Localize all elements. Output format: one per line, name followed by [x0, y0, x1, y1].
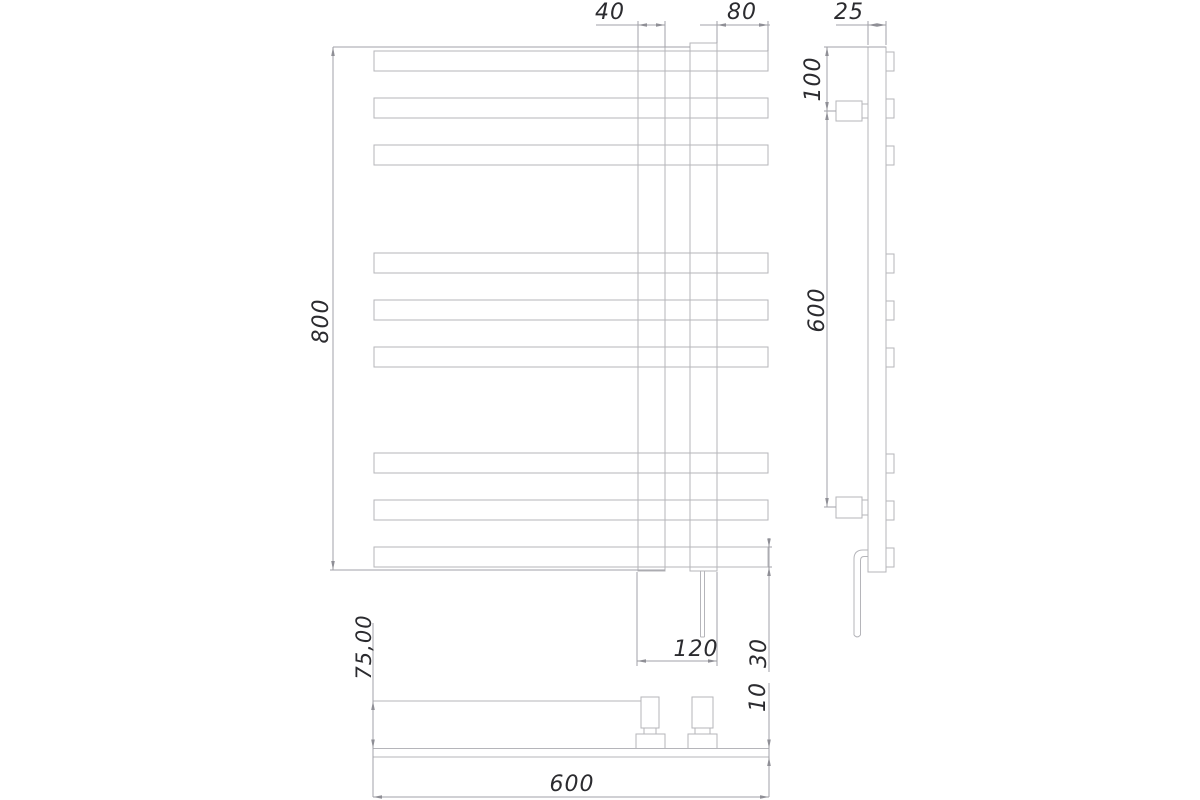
- fitting-base: [636, 734, 665, 749]
- collector-profile: [868, 47, 886, 572]
- dim-mount-depth-75: 75,00: [352, 614, 376, 797]
- arrowhead: [656, 23, 665, 27]
- dim-label: 25: [834, 0, 864, 25]
- dim-label: 75,00: [352, 614, 376, 679]
- bar-stub: [886, 254, 894, 273]
- arrowhead: [717, 23, 726, 27]
- bracket-body: [836, 101, 862, 121]
- fitting-base: [688, 734, 717, 749]
- arrowhead: [638, 23, 647, 27]
- arrowhead: [760, 795, 769, 799]
- bar-stub: [886, 52, 894, 71]
- arrowhead: [868, 23, 877, 27]
- arrowhead: [767, 539, 771, 548]
- dim-bracket-spacing-600: 600: [805, 111, 836, 507]
- arrowhead: [877, 23, 886, 27]
- dim-label: 30: [747, 638, 772, 668]
- bottom-view: [373, 697, 769, 757]
- arrowhead: [371, 740, 375, 749]
- union-fitting: [688, 697, 717, 749]
- arrowhead: [373, 795, 382, 799]
- dim-width-600: 600: [373, 772, 769, 799]
- side-view: [836, 47, 894, 637]
- wall-bracket-bottom: [836, 497, 868, 518]
- bar-stub: [886, 548, 894, 567]
- dim-collector-width-120: 120: [637, 572, 719, 666]
- wall-bracket-top: [836, 101, 868, 121]
- dim-label: 10: [746, 682, 771, 712]
- bar-stub: [886, 501, 894, 520]
- towel-bar: [374, 145, 768, 165]
- cable-inner: [861, 557, 869, 636]
- towel-bar: [374, 500, 768, 520]
- arrowhead: [759, 23, 768, 27]
- bracket-collar: [862, 104, 868, 118]
- dim-label: 800: [309, 299, 334, 344]
- dim-label: 600: [805, 288, 830, 333]
- dim-height-800: 800: [309, 47, 690, 570]
- towel-bar: [374, 347, 768, 367]
- arrowhead: [331, 561, 335, 570]
- fitting-stem: [641, 697, 659, 728]
- collector-tube-left: [638, 47, 665, 571]
- dim-bar-depth-10: 10: [746, 682, 771, 797]
- dim-label: 120: [674, 637, 719, 662]
- bar-stub: [886, 301, 894, 320]
- dim-tube-width-40: 40: [595, 0, 665, 47]
- towel-bar: [374, 253, 768, 273]
- arrowhead: [371, 701, 375, 710]
- towel-bar: [374, 547, 768, 567]
- bar-stub: [886, 454, 894, 473]
- power-cable: [854, 550, 868, 637]
- cable-cap: [854, 635, 861, 637]
- arrowhead: [825, 498, 829, 507]
- dim-label: 40: [595, 0, 625, 25]
- dim-label: 80: [727, 0, 757, 25]
- dim-label: 600: [550, 772, 595, 797]
- bar-stub: [886, 99, 894, 118]
- arrowhead: [825, 47, 829, 56]
- fitting-neck: [644, 728, 656, 734]
- arrowhead: [767, 567, 771, 576]
- drawing-canvas: 800 40 80 25 100: [0, 0, 1200, 800]
- towel-bar: [374, 98, 768, 118]
- arrowhead: [637, 659, 646, 663]
- technical-drawing: 800 40 80 25 100: [0, 0, 1200, 800]
- fitting-neck: [695, 728, 710, 734]
- arrowhead: [767, 740, 771, 749]
- arrowhead: [331, 47, 335, 56]
- arrowhead: [825, 111, 829, 120]
- bracket-collar: [862, 500, 868, 515]
- towel-bar: [374, 300, 768, 320]
- front-view: [374, 43, 768, 637]
- collector-tube-right: [690, 43, 717, 571]
- bar-stub: [886, 146, 894, 165]
- dim-label: 100: [801, 57, 826, 102]
- fitting-stem: [692, 697, 713, 728]
- union-fitting: [636, 697, 665, 749]
- arrowhead: [767, 757, 771, 766]
- towel-bar: [374, 51, 768, 71]
- towel-bar: [374, 453, 768, 473]
- dim-depth-25: 25: [834, 0, 886, 45]
- bracket-body: [836, 497, 862, 518]
- arrowhead: [825, 102, 829, 111]
- bar-stub: [886, 348, 894, 367]
